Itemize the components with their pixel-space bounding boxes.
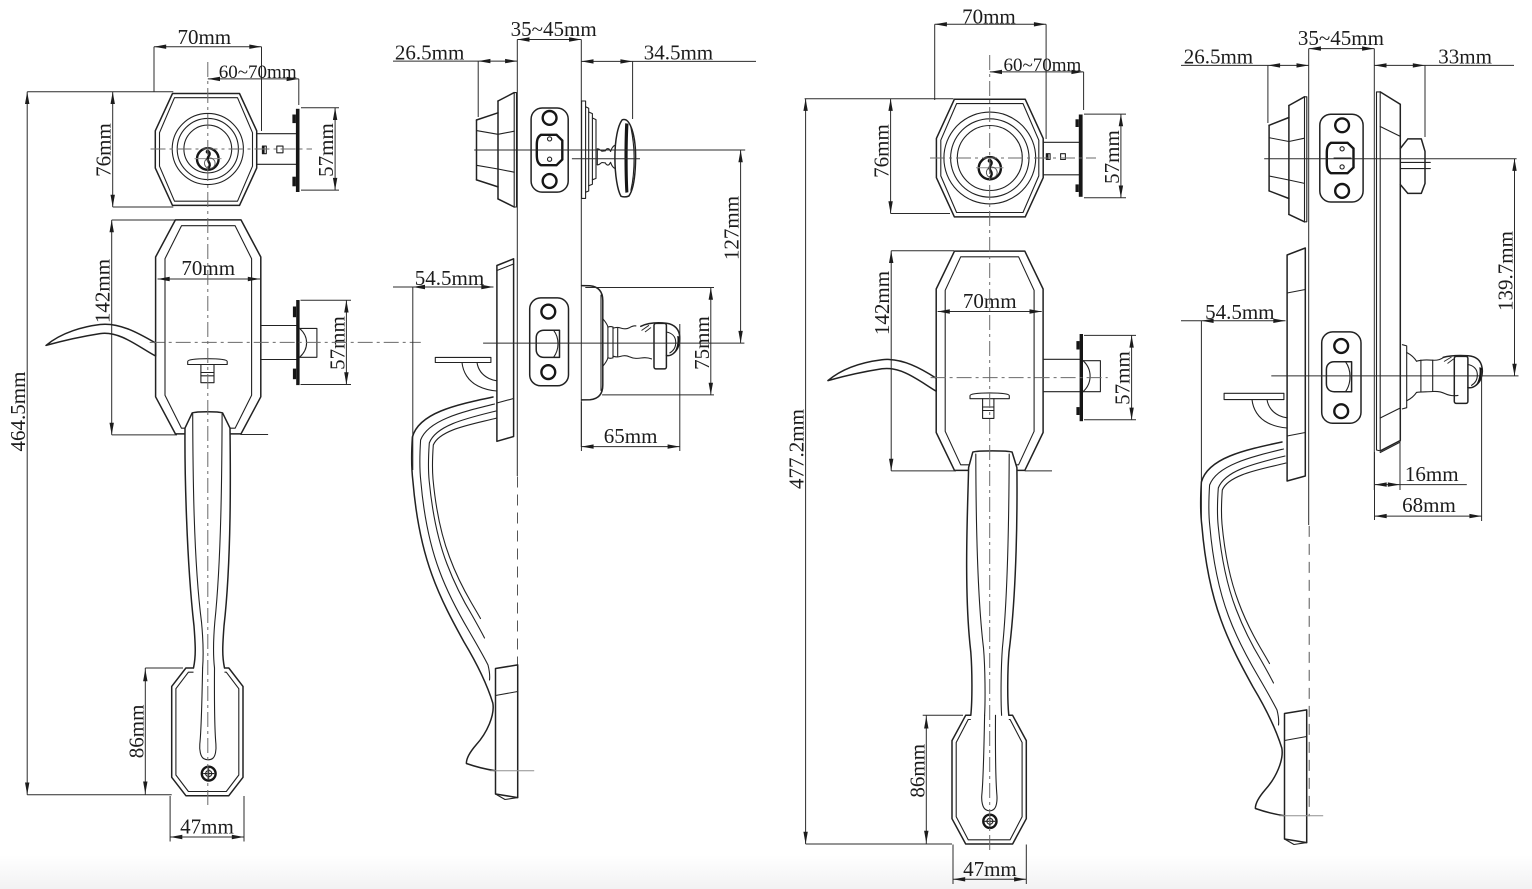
svg-text:34.5mm: 34.5mm — [644, 41, 713, 65]
svg-text:86mm: 86mm — [124, 705, 148, 759]
svg-text:142mm: 142mm — [870, 271, 894, 335]
svg-text:57mm: 57mm — [314, 123, 338, 177]
svg-text:47mm: 47mm — [180, 815, 234, 839]
svg-text:57mm: 57mm — [325, 316, 349, 370]
svg-text:477.2mm: 477.2mm — [785, 409, 809, 489]
svg-text:26.5mm: 26.5mm — [1184, 45, 1253, 69]
svg-text:57mm: 57mm — [1100, 130, 1124, 184]
svg-text:60~70mm: 60~70mm — [219, 62, 297, 83]
svg-text:35~45mm: 35~45mm — [511, 17, 597, 41]
svg-text:54.5mm: 54.5mm — [415, 266, 484, 290]
svg-text:76mm: 76mm — [870, 124, 894, 178]
svg-text:35~45mm: 35~45mm — [1298, 26, 1384, 50]
svg-text:65mm: 65mm — [604, 424, 658, 448]
svg-text:464.5mm: 464.5mm — [6, 372, 30, 452]
svg-text:139.7mm: 139.7mm — [1494, 231, 1518, 311]
svg-text:76mm: 76mm — [92, 123, 116, 177]
svg-text:57mm: 57mm — [1111, 351, 1135, 405]
svg-text:54.5mm: 54.5mm — [1205, 300, 1274, 324]
svg-text:47mm: 47mm — [963, 857, 1017, 881]
svg-text:70mm: 70mm — [177, 25, 231, 49]
svg-text:70mm: 70mm — [962, 4, 1016, 28]
svg-text:33mm: 33mm — [1438, 45, 1492, 69]
svg-text:142mm: 142mm — [91, 259, 115, 323]
svg-text:127mm: 127mm — [720, 196, 744, 260]
svg-text:86mm: 86mm — [905, 744, 929, 798]
svg-text:60~70mm: 60~70mm — [1003, 55, 1081, 76]
svg-text:75mm: 75mm — [690, 316, 714, 370]
svg-text:16mm: 16mm — [1405, 462, 1459, 486]
svg-text:26.5mm: 26.5mm — [395, 41, 464, 65]
svg-text:68mm: 68mm — [1402, 493, 1456, 517]
